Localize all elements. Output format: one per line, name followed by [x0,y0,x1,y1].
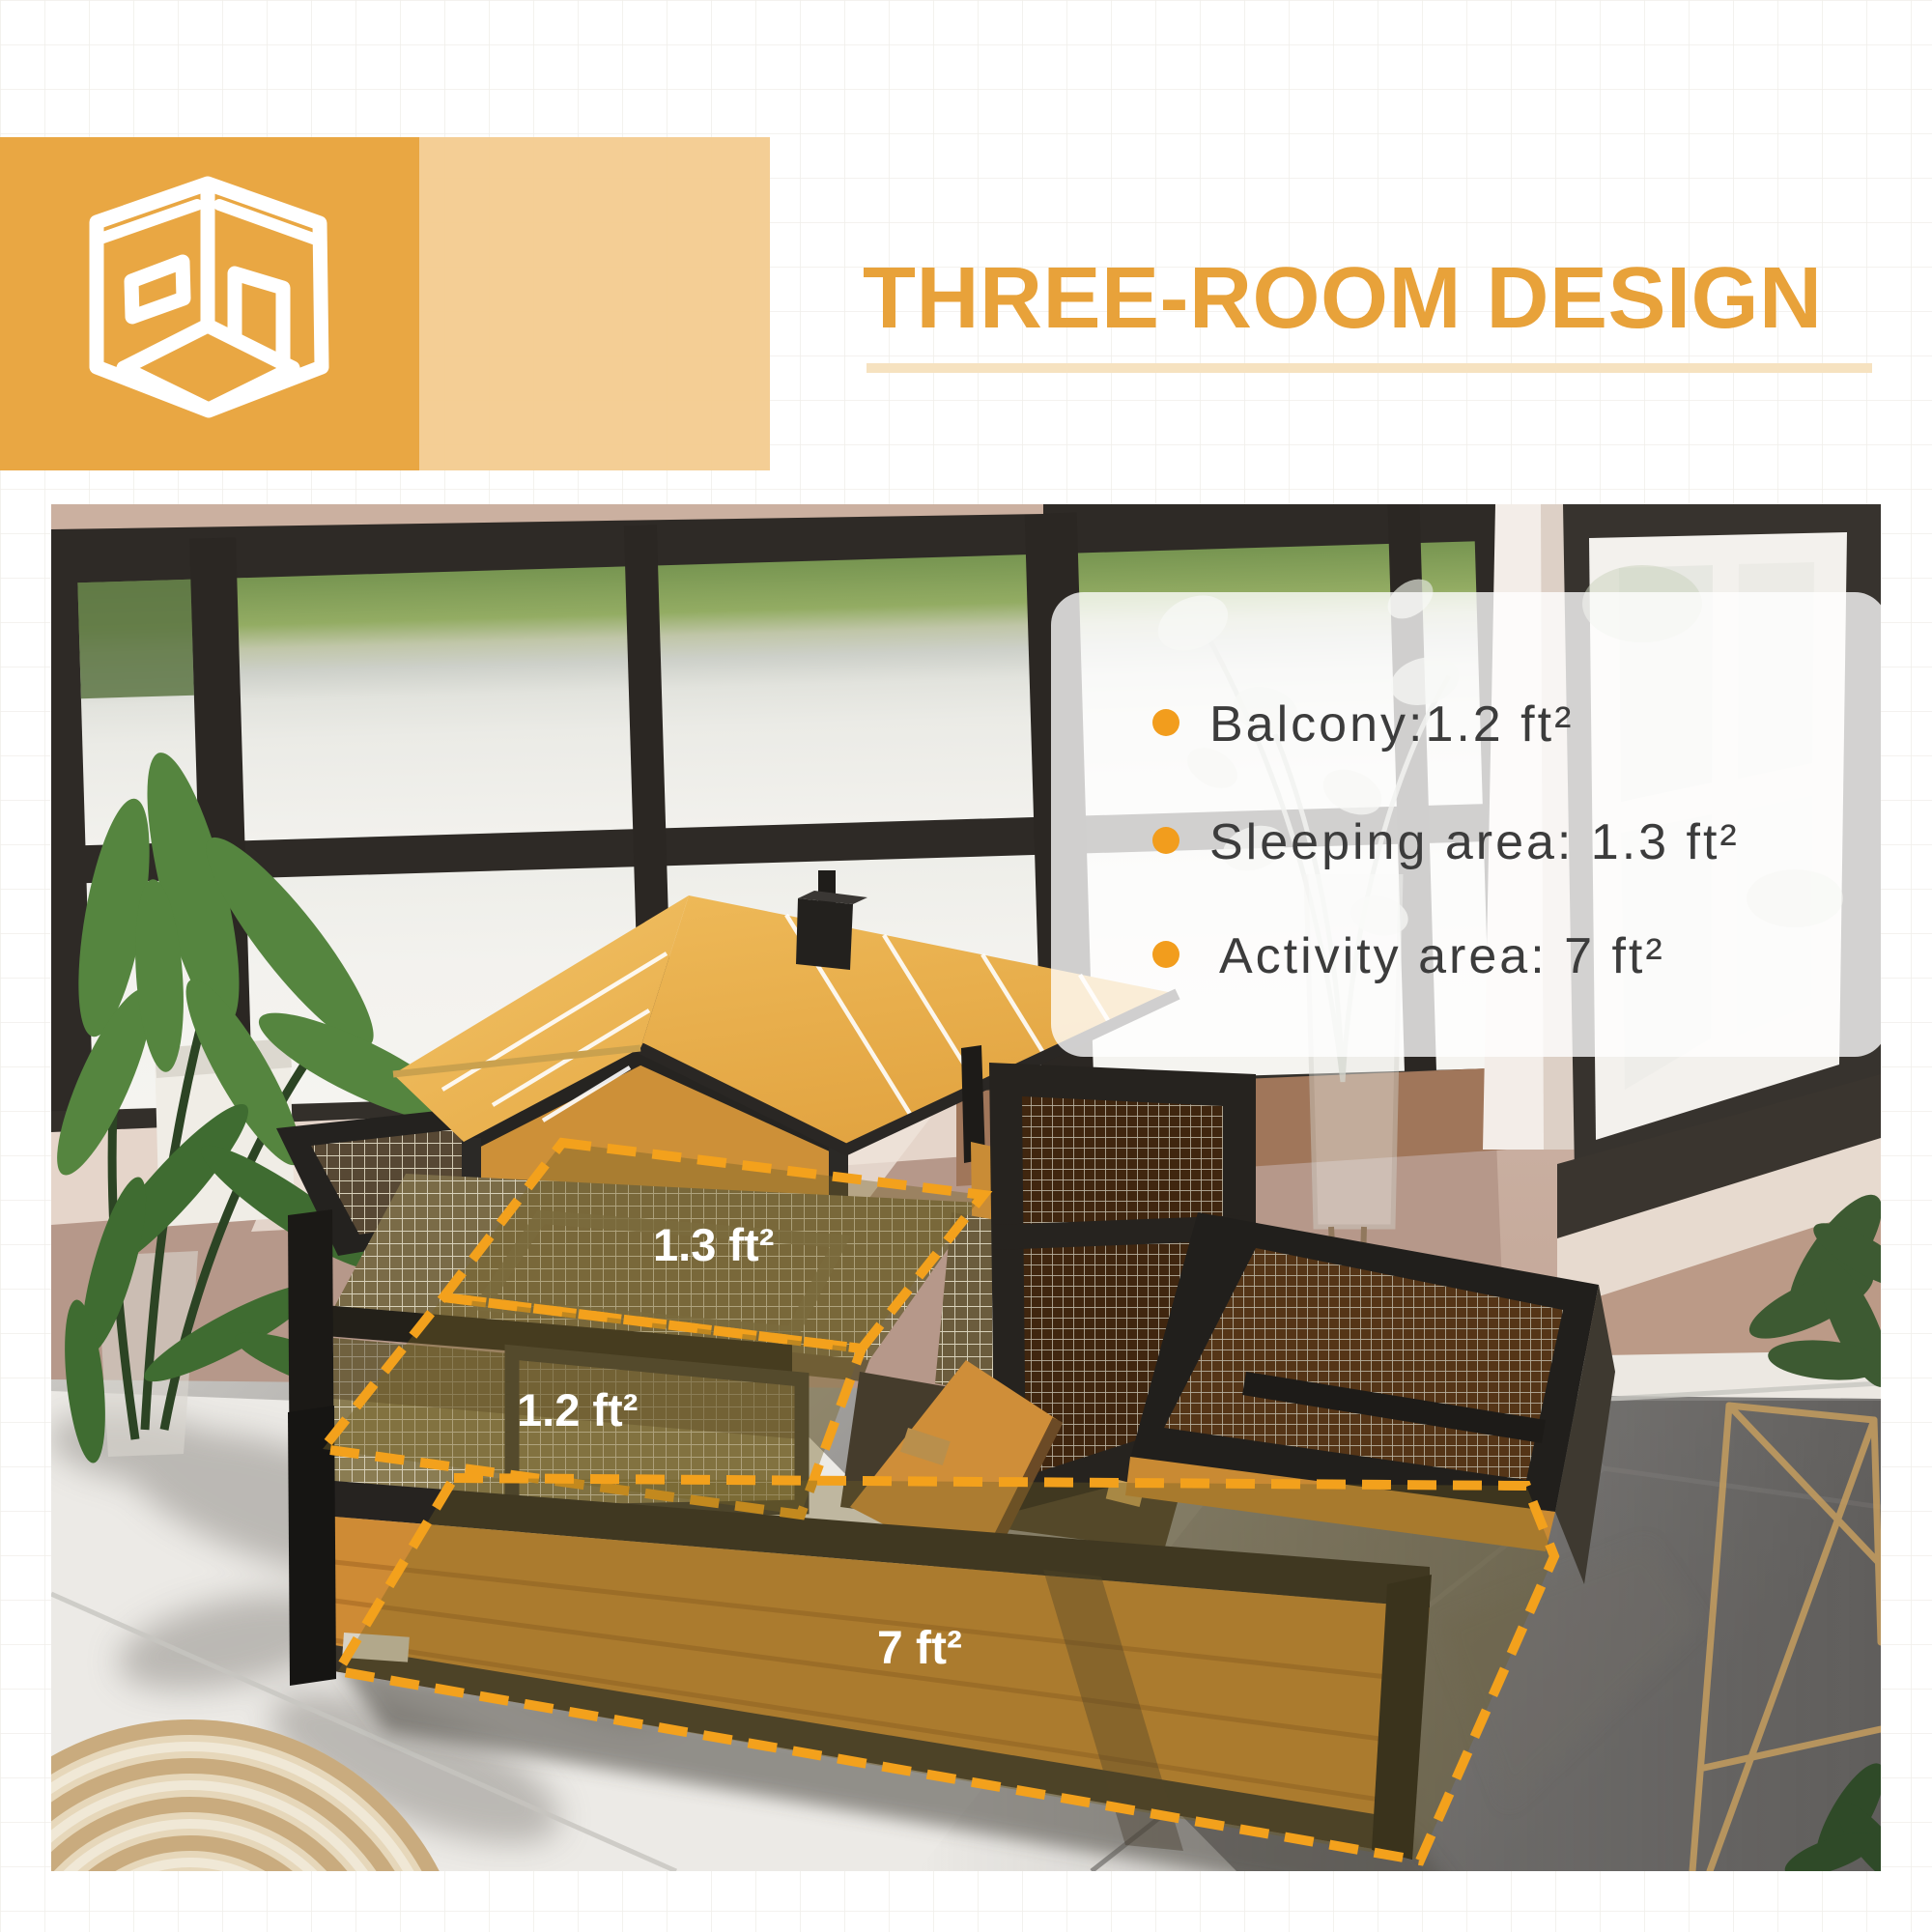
svg-text:Activity area: 7 ft²: Activity area: 7 ft² [1219,928,1665,984]
svg-text:Balcony:1.2 ft²: Balcony:1.2 ft² [1209,696,1574,753]
svg-text:7 ft²: 7 ft² [877,1623,962,1674]
svg-text:1.3 ft²: 1.3 ft² [653,1219,774,1270]
svg-text:THREE-ROOM DESIGN: THREE-ROOM DESIGN [863,250,1823,347]
svg-text:Sleeping area: 1.3 ft²: Sleeping area: 1.3 ft² [1209,814,1740,870]
svg-text:1.2 ft²: 1.2 ft² [517,1384,638,1435]
